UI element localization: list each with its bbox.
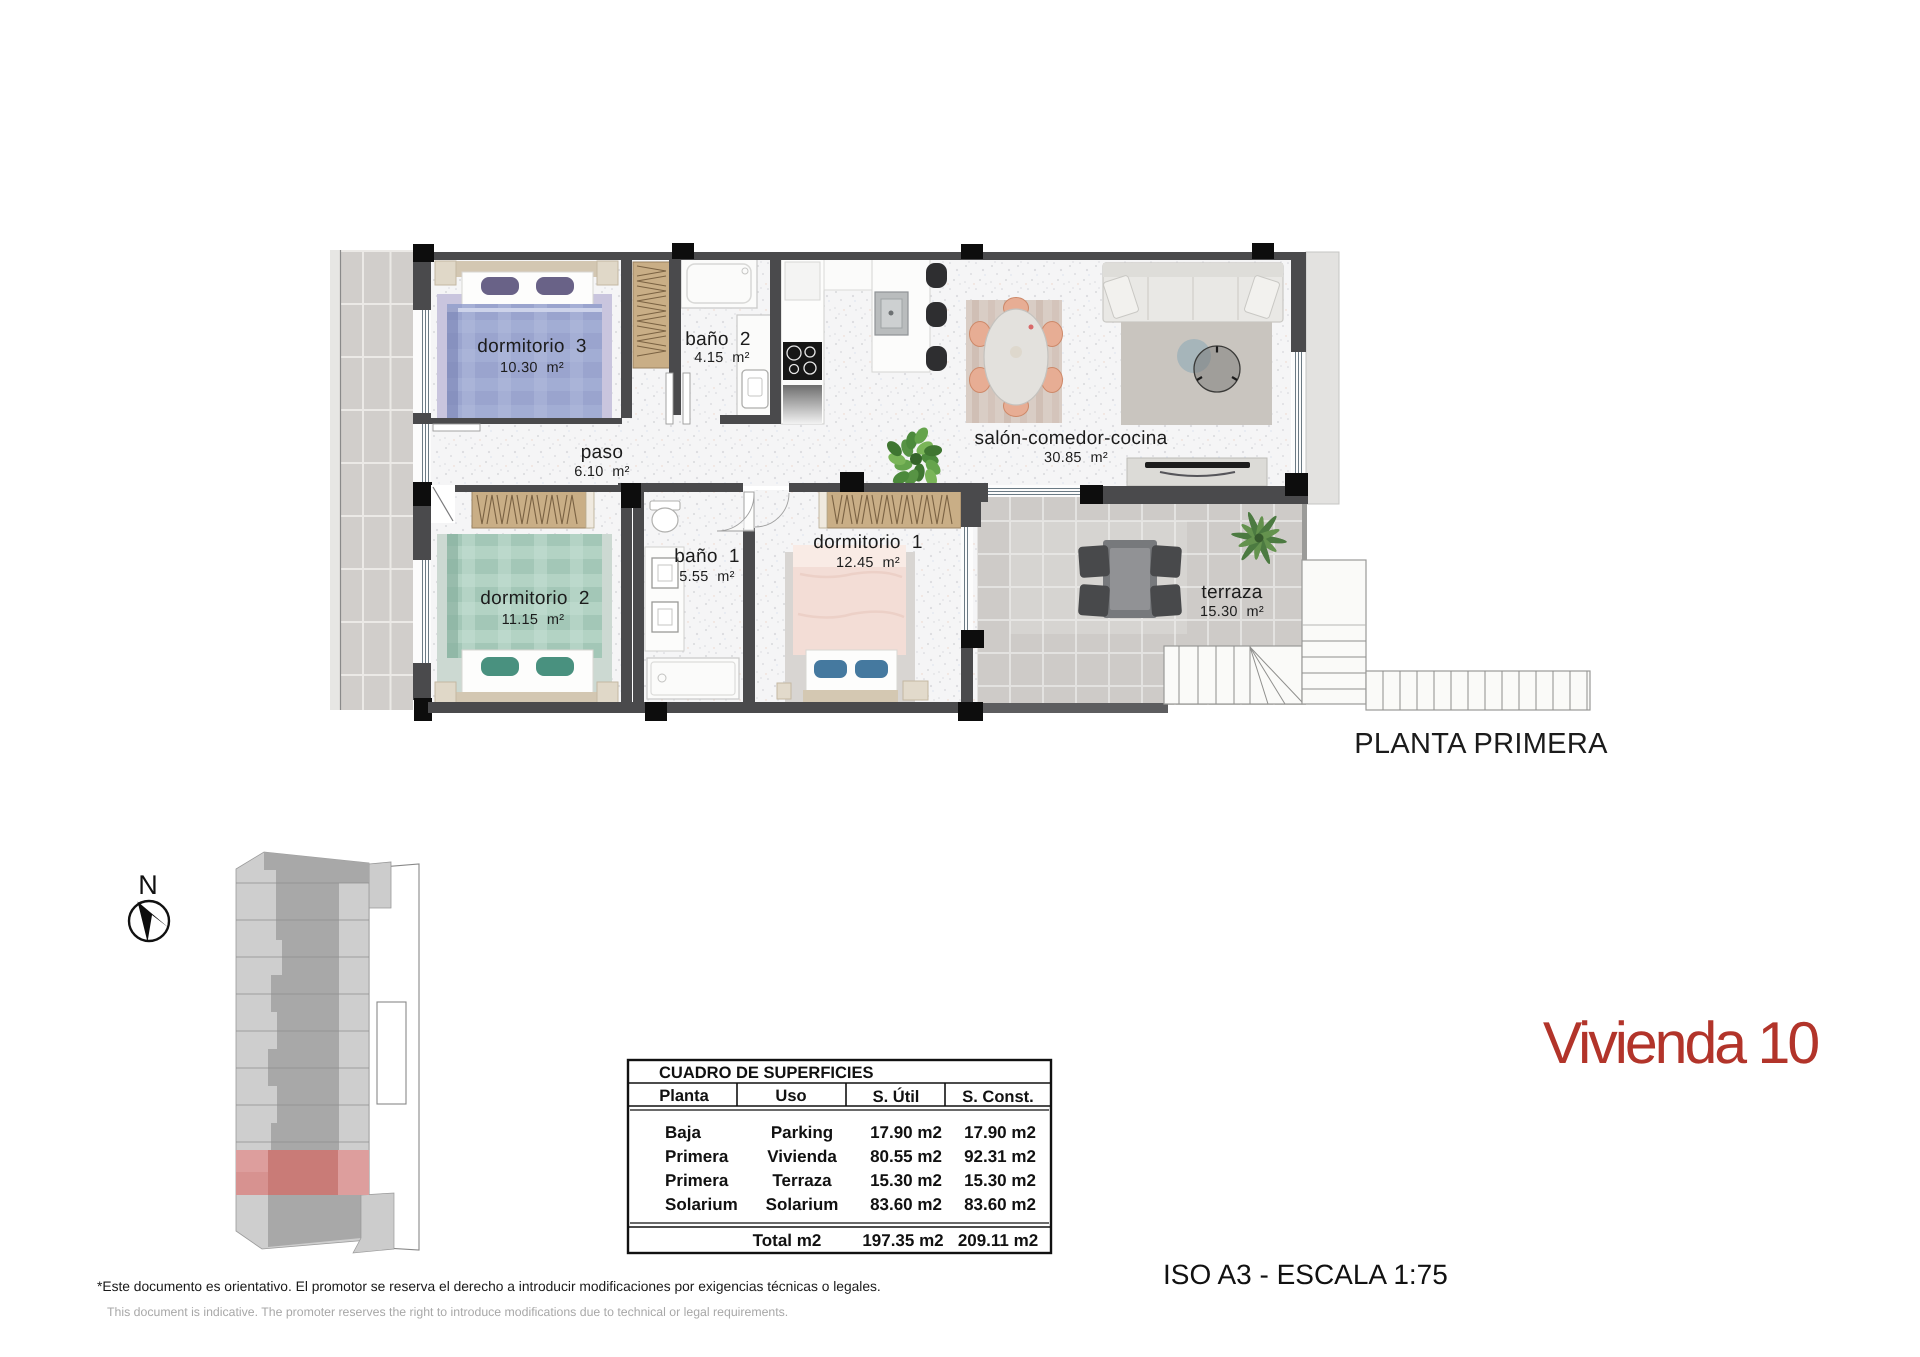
svg-text:6.10 m²: 6.10 m²: [574, 464, 630, 480]
svg-text:15.30 m2: 15.30 m2: [870, 1171, 942, 1190]
svg-text:17.90 m2: 17.90 m2: [964, 1123, 1036, 1142]
svg-text:Solarium: Solarium: [766, 1195, 839, 1214]
svg-text:S. Útil: S. Útil: [873, 1087, 920, 1106]
svg-text:Vivienda 10: Vivienda 10: [1543, 1010, 1818, 1076]
svg-text:dormitorio 2: dormitorio 2: [480, 588, 590, 609]
svg-text:This document is indicative. T: This document is indicative. The promote…: [107, 1305, 788, 1319]
svg-text:paso: paso: [581, 442, 623, 463]
svg-text:dormitorio 1: dormitorio 1: [813, 532, 923, 553]
svg-text:Terraza: Terraza: [772, 1171, 832, 1190]
svg-text:209.11 m2: 209.11 m2: [958, 1231, 1038, 1250]
svg-text:N: N: [138, 870, 158, 900]
svg-text:baño 2: baño 2: [685, 329, 751, 350]
svg-text:Primera: Primera: [665, 1147, 729, 1166]
svg-text:11.15 m²: 11.15 m²: [502, 612, 565, 628]
svg-text:baño 1: baño 1: [674, 546, 740, 567]
svg-text:80.55 m2: 80.55 m2: [870, 1147, 942, 1166]
svg-text:Uso: Uso: [775, 1087, 806, 1105]
svg-text:terraza: terraza: [1201, 582, 1262, 603]
svg-text:Planta: Planta: [659, 1087, 709, 1105]
svg-text:10.30 m²: 10.30 m²: [500, 360, 564, 376]
svg-text:12.45 m²: 12.45 m²: [836, 555, 900, 571]
svg-text:*Este documento es orientativo: *Este documento es orientativo. El promo…: [97, 1279, 881, 1294]
svg-text:4.15 m²: 4.15 m²: [694, 350, 750, 366]
svg-text:17.90 m2: 17.90 m2: [870, 1123, 942, 1142]
svg-text:92.31 m2: 92.31 m2: [964, 1147, 1036, 1166]
svg-text:Total m2: Total m2: [753, 1231, 822, 1250]
svg-text:dormitorio 3: dormitorio 3: [477, 336, 587, 357]
svg-text:197.35 m2: 197.35 m2: [862, 1231, 943, 1250]
svg-text:Baja: Baja: [665, 1123, 701, 1142]
svg-text:ISO A3 - ESCALA 1:75: ISO A3 - ESCALA 1:75: [1163, 1259, 1448, 1290]
svg-text:PLANTA PRIMERA: PLANTA PRIMERA: [1354, 728, 1608, 760]
svg-text:5.55 m²: 5.55 m²: [679, 569, 735, 585]
svg-text:15.30 m2: 15.30 m2: [964, 1171, 1036, 1190]
svg-text:S. Const.: S. Const.: [962, 1088, 1034, 1106]
svg-text:Primera: Primera: [665, 1171, 729, 1190]
svg-text:CUADRO DE SUPERFICIES: CUADRO DE SUPERFICIES: [659, 1064, 874, 1082]
svg-text:83.60 m2: 83.60 m2: [964, 1195, 1036, 1214]
svg-text:Parking: Parking: [771, 1123, 833, 1142]
svg-text:15.30 m²: 15.30 m²: [1200, 604, 1264, 620]
svg-text:Vivienda: Vivienda: [767, 1147, 837, 1166]
svg-text:30.85 m²: 30.85 m²: [1044, 450, 1108, 466]
svg-text:Solarium: Solarium: [665, 1195, 738, 1214]
svg-text:83.60 m2: 83.60 m2: [870, 1195, 942, 1214]
svg-text:salón-comedor-cocina: salón-comedor-cocina: [975, 428, 1168, 449]
